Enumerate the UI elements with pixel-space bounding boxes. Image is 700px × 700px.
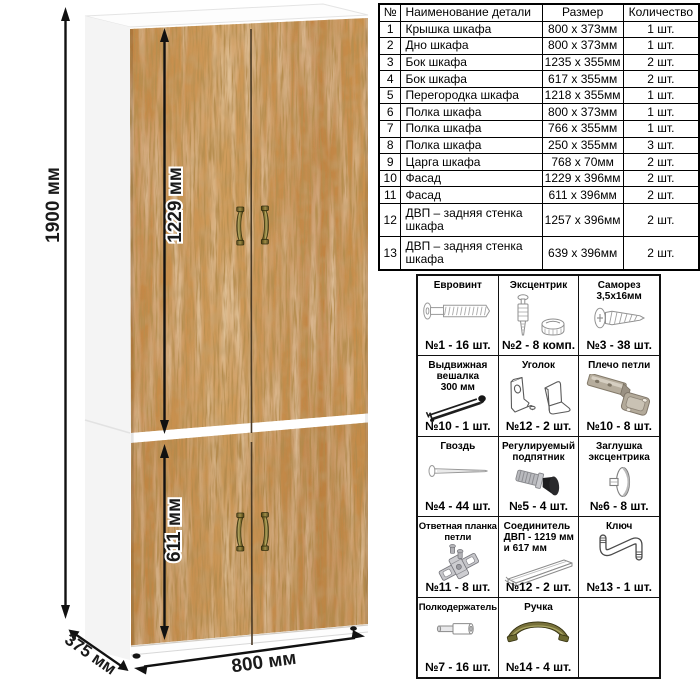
- svg-text:1900 мм: 1900 мм: [43, 167, 64, 243]
- svg-text:800 мм: 800 мм: [230, 648, 297, 678]
- svg-text:611 мм: 611 мм: [164, 498, 185, 562]
- svg-text:1229 мм: 1229 мм: [165, 167, 186, 243]
